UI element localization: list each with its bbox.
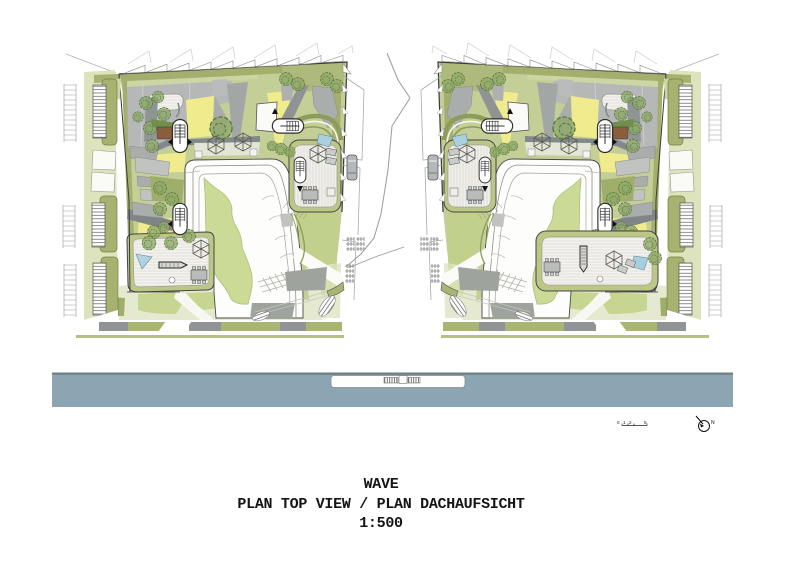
svg-text:5: 5 <box>644 420 647 425</box>
svg-text:1:500: 1:500 <box>359 515 403 532</box>
svg-text:0: 0 <box>617 420 620 425</box>
svg-text:2: 2 <box>629 420 632 425</box>
svg-text:WAVE: WAVE <box>364 476 399 493</box>
svg-text:N: N <box>711 420 715 426</box>
svg-text:1: 1 <box>623 420 626 425</box>
svg-text:PLAN TOP VIEW / PLAN DACHAUFSI: PLAN TOP VIEW / PLAN DACHAUFSICHT <box>237 496 524 513</box>
